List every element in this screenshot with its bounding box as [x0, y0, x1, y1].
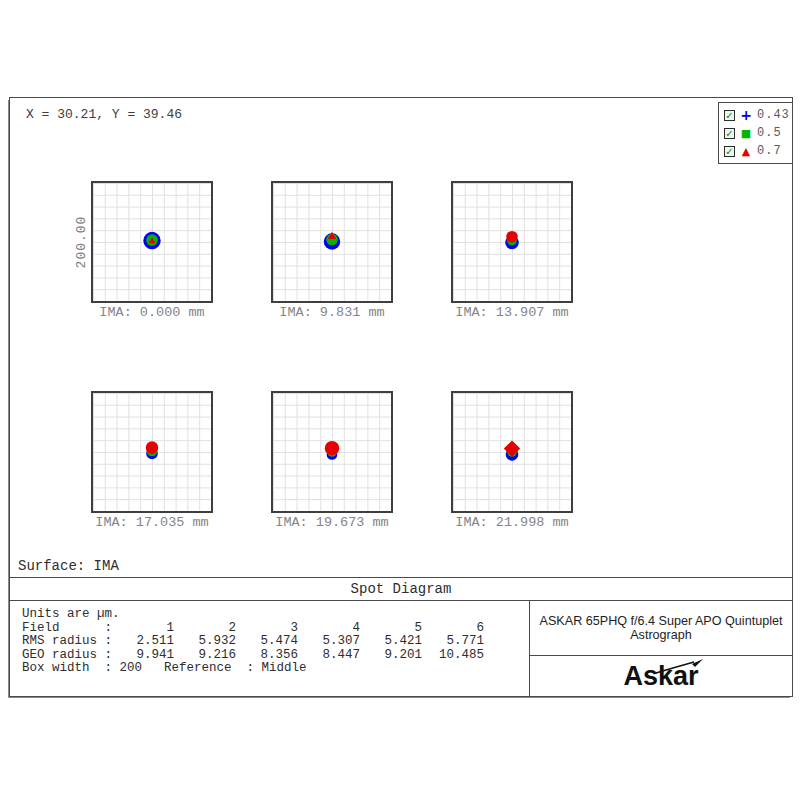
rms-value: 5.932 — [174, 635, 236, 649]
ima-position-label: IMA: 21.998 mm — [430, 515, 594, 530]
rms-value: 5.474 — [236, 635, 298, 649]
spot-panel-field-6: IMA: 21.998 mm — [451, 391, 573, 513]
spot-panel-field-4: IMA: 17.035 mm — [91, 391, 213, 513]
box-scale-label: 200.00 — [74, 197, 90, 287]
brand-logo: Askar — [530, 656, 792, 696]
field-number: 2 — [174, 622, 236, 636]
checkbox-checked-icon[interactable]: ✓ — [724, 146, 735, 157]
ima-position-label: IMA: 9.831 mm — [250, 305, 414, 320]
rms-value: 5.771 — [422, 635, 484, 649]
geo-value: 9.216 — [174, 649, 236, 663]
wavelength-value: 0.43 — [757, 108, 790, 122]
spot-grid — [91, 181, 213, 303]
table-row-field: Field : 1 2 3 4 5 6 — [22, 622, 529, 636]
rms-value: 5.421 — [360, 635, 422, 649]
row-label: Box width : — [22, 662, 112, 676]
ima-position-label: IMA: 19.673 mm — [250, 515, 414, 530]
table-row-rms: RMS radius : 2.511 5.932 5.474 5.307 5.4… — [22, 635, 529, 649]
spot-panel-field-2: IMA: 9.831 mm — [271, 181, 393, 303]
field-number: 5 — [360, 622, 422, 636]
instrument-name: ASKAR 65PHQ f/6.4 Super APO Quintuplet A… — [530, 601, 792, 656]
reference-setting: Reference : Middle — [164, 662, 307, 676]
field-number: 4 — [298, 622, 360, 636]
square-icon: ■ — [740, 128, 752, 139]
spot-diagram-report: X = 30.21, Y = 39.46 ✓ + 0.43 ✓ ■ 0.5 ✓ … — [0, 0, 800, 800]
table-row-geo: GEO radius : 9.941 9.216 8.356 8.447 9.2… — [22, 649, 529, 663]
title-block: ASKAR 65PHQ f/6.4 Super APO Quintuplet A… — [529, 601, 792, 696]
field-number: 1 — [112, 622, 174, 636]
ima-position-label: IMA: 13.907 mm — [430, 305, 594, 320]
spot-grid — [451, 391, 573, 513]
askar-swoosh-icon — [654, 658, 706, 676]
field-number: 3 — [236, 622, 298, 636]
geo-value: 10.485 — [422, 649, 484, 663]
cursor-coordinates-readout: X = 30.21, Y = 39.46 — [26, 107, 182, 122]
report-frame: X = 30.21, Y = 39.46 ✓ + 0.43 ✓ ■ 0.5 ✓ … — [9, 97, 793, 697]
plus-icon: + — [740, 110, 752, 121]
spot-panel-field-3: IMA: 13.907 mm — [451, 181, 573, 303]
summary-area: Units are µm. Field : 1 2 3 4 5 6 RMS ra… — [10, 601, 792, 696]
geo-value: 9.201 — [360, 649, 422, 663]
geo-value: 8.356 — [236, 649, 298, 663]
rms-value: 5.307 — [298, 635, 360, 649]
spot-grid — [271, 391, 393, 513]
legend-row-07: ✓ ▲ 0.7 — [724, 142, 787, 160]
checkbox-checked-icon[interactable]: ✓ — [724, 128, 735, 139]
spot-panel-field-5: IMA: 19.673 mm — [271, 391, 393, 513]
field-number: 6 — [422, 622, 484, 636]
row-label: RMS radius : — [22, 635, 112, 649]
checkbox-checked-icon[interactable]: ✓ — [724, 110, 735, 121]
rms-value: 2.511 — [112, 635, 174, 649]
wavelength-value: 0.7 — [757, 144, 782, 158]
triangle-icon: ▲ — [740, 146, 752, 157]
ima-position-label: IMA: 17.035 mm — [70, 515, 234, 530]
box-width-value: 200 — [112, 662, 142, 676]
page-title: Spot Diagram — [10, 578, 792, 601]
wavelength-value: 0.5 — [757, 126, 782, 140]
geo-value: 9.941 — [112, 649, 174, 663]
row-label: GEO radius : — [22, 649, 112, 663]
summary-table: Units are µm. Field : 1 2 3 4 5 6 RMS ra… — [10, 601, 529, 696]
ima-position-label: IMA: 0.000 mm — [70, 305, 234, 320]
spot-panel-field-1: IMA: 0.000 mm — [91, 181, 213, 303]
spot-grid — [451, 181, 573, 303]
geo-value: 8.447 — [298, 649, 360, 663]
wavelength-legend: ✓ + 0.43 ✓ ■ 0.5 ✓ ▲ 0.7 — [718, 102, 793, 164]
row-label: Field : — [22, 622, 112, 636]
legend-row-05: ✓ ■ 0.5 — [724, 124, 787, 142]
spot-grid — [271, 181, 393, 303]
legend-row-043: ✓ + 0.43 — [724, 106, 787, 124]
units-note: Units are µm. — [22, 608, 529, 622]
table-row-boxwidth: Box width : 200 Reference : Middle — [22, 662, 529, 676]
surface-label: Surface: IMA — [10, 553, 792, 578]
spot-grid — [91, 391, 213, 513]
